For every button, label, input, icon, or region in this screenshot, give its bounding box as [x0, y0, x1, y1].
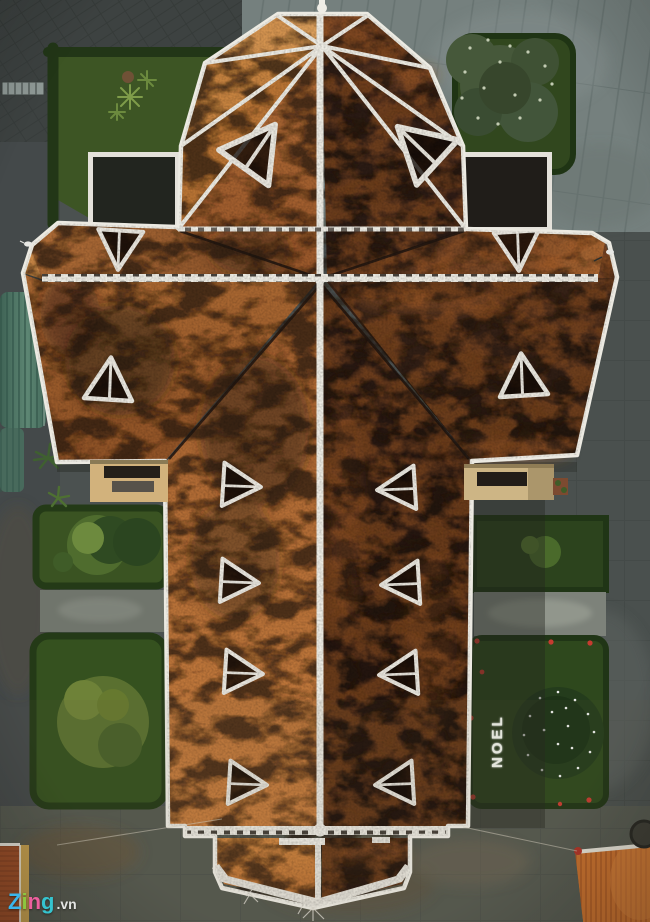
- watermark-letter-z: Z: [8, 889, 21, 914]
- noel-lawn-text: NOEL: [487, 708, 509, 768]
- scene-canvas: [0, 0, 650, 922]
- watermark-letter-n: n: [28, 889, 41, 914]
- watermark-suffix: .vn: [56, 896, 76, 912]
- watermark: Zing.vn: [8, 890, 77, 916]
- aerial-church-photo: NOEL Zing.vn: [0, 0, 650, 922]
- vignette: [0, 0, 650, 922]
- watermark-letter-g: g: [41, 889, 54, 914]
